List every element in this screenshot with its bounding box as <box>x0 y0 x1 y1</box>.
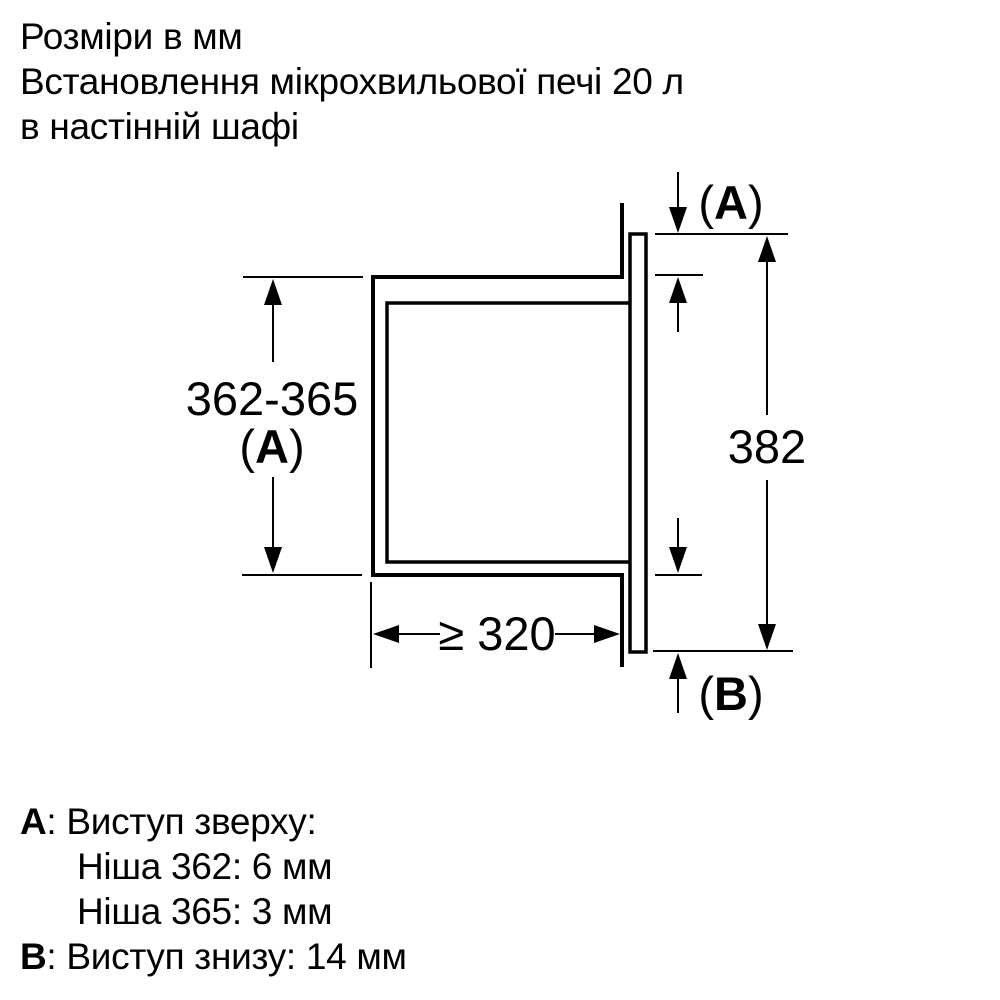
dim-overhang-bottom: (B) <box>653 518 793 720</box>
arrow-right-icon <box>594 625 620 643</box>
depth-label: ≥ 320 <box>438 607 555 660</box>
legend: A: Виступ зверху: Ніша 362: 6 мм Ніша 36… <box>20 799 407 979</box>
arrow-up-icon <box>669 653 687 679</box>
dim-front-height: 382 <box>728 236 806 650</box>
microwave-body <box>387 303 630 562</box>
cabinet-section-line <box>373 203 622 667</box>
arrow-down-icon <box>669 547 687 573</box>
dim-depth: ≥ 320 <box>371 582 620 668</box>
legend-b-text: : Виступ знизу: 14 мм <box>46 936 406 977</box>
microwave-body-line <box>387 303 630 562</box>
overhang-bottom-label: (B) <box>698 667 763 720</box>
front-height-label: 382 <box>728 420 806 473</box>
legend-a-text: : Виступ зверху: <box>46 801 316 842</box>
niche-height-label: 362-365 <box>186 372 359 425</box>
cabinet-outline <box>373 203 622 667</box>
legend-a-row2: Ніша 365: 3 мм <box>20 889 407 934</box>
arrow-down-icon <box>669 207 687 233</box>
dim-niche-height: 362-365 (A) <box>186 277 363 575</box>
arrow-up-icon <box>669 277 687 303</box>
front-panel-rect <box>630 234 646 652</box>
front-panel <box>630 234 646 652</box>
legend-b-letter: B <box>20 936 46 977</box>
legend-item-b: B: Виступ знизу: 14 мм <box>20 934 407 979</box>
legend-a-row1: Ніша 362: 6 мм <box>20 844 407 889</box>
page: Розміри в мм Встановлення мікрохвильової… <box>0 0 1000 1000</box>
overhang-top-label: (A) <box>698 176 763 229</box>
arrow-up-icon <box>264 279 282 305</box>
arrow-left-icon <box>373 625 399 643</box>
arrow-down-icon <box>264 547 282 573</box>
arrow-down-icon <box>758 624 776 650</box>
legend-item-a: A: Виступ зверху: <box>20 799 407 844</box>
legend-a-letter: A <box>20 801 46 842</box>
niche-height-ref-label: (A) <box>239 420 304 473</box>
arrow-up-icon <box>758 236 776 262</box>
